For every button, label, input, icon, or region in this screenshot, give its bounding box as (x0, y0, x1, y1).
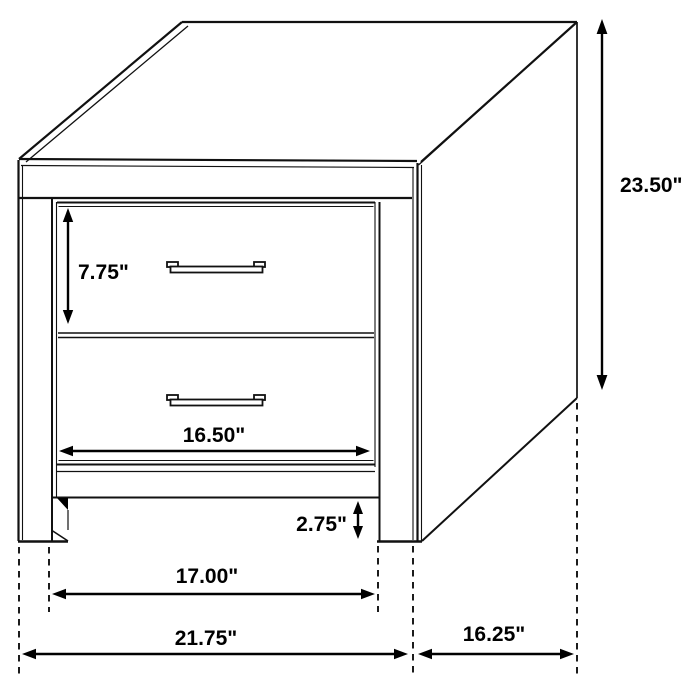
overall-width-dimension: 21.75" (22, 627, 408, 659)
left-leg-bevel (57, 498, 68, 510)
arrowhead-right (356, 446, 370, 456)
drawer-width-dimension: 16.50" (59, 424, 370, 456)
depth-dimension: 16.25" (418, 623, 574, 659)
arrowhead-left (22, 649, 36, 659)
base-legs (18, 498, 422, 542)
drawer-height-dimension: 7.75" (63, 208, 129, 324)
top-drawer-handle (167, 262, 265, 273)
tabletop-front-top-edge (19, 159, 417, 161)
nightstand-dimension-diagram: 23.50" 7.75" 16.50" 2.75" 17 (0, 0, 700, 700)
leg-span-label: 17.00" (176, 565, 239, 588)
height-label: 23.50" (620, 174, 683, 197)
arrowhead-up (597, 19, 608, 34)
arrowhead-down (63, 310, 73, 324)
arrowhead-right (560, 649, 574, 659)
arrowhead-up (63, 208, 73, 222)
drawer-width-label: 16.50" (183, 424, 246, 447)
overall-width-label: 21.75" (175, 627, 238, 650)
front-frame (19, 160, 380, 541)
tabletop-front-inner-edge (21, 166, 414, 168)
side-panel-bottom-edge (422, 398, 577, 541)
arrowhead-left (52, 589, 66, 599)
tabletop-left-edge-inner (26, 26, 188, 162)
arrowhead-down (597, 375, 608, 390)
arrowhead-right (394, 649, 408, 659)
clearance-dimension: 2.75" (296, 501, 363, 539)
tabletop-right-edge-inner (419, 26, 573, 165)
dimensions: 23.50" 7.75" 16.50" 2.75" 17 (22, 19, 683, 659)
handle-bar (171, 267, 263, 273)
leg-span-dimension: 17.00" (52, 565, 375, 599)
drawer-height-label: 7.75" (78, 261, 129, 284)
arrowhead-right (361, 589, 375, 599)
arrowhead-down (353, 526, 363, 539)
depth-label: 16.25" (463, 623, 526, 646)
arrowhead-left (418, 649, 432, 659)
height-dimension: 23.50" (597, 19, 683, 390)
tabletop-left-edge (19, 22, 182, 159)
arrowhead-left (59, 446, 73, 456)
left-leg-chamfer (52, 531, 68, 542)
tabletop (19, 22, 577, 198)
handle-bar (171, 400, 263, 406)
diagram-canvas: 23.50" 7.75" 16.50" 2.75" 17 (0, 0, 700, 700)
side-panel (413, 22, 577, 541)
arrowhead-up (353, 501, 363, 514)
bottom-drawer-handle (167, 395, 265, 406)
clearance-label: 2.75" (296, 513, 347, 536)
